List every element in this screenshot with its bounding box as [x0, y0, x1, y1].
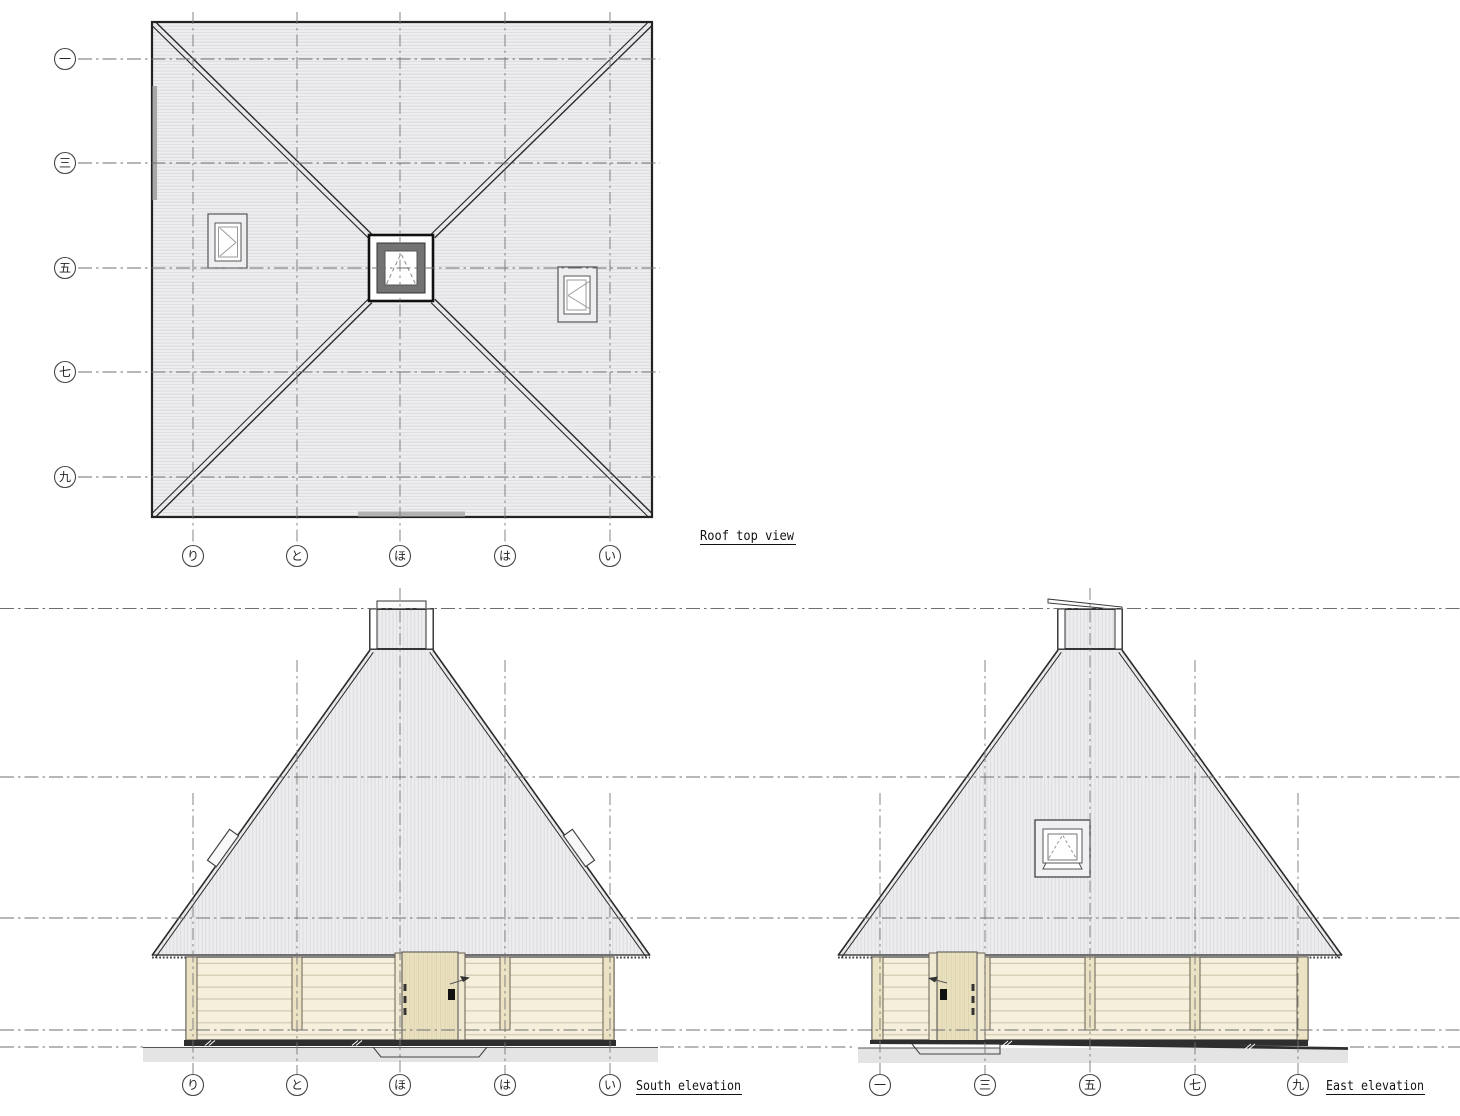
grid-label: 三: [979, 1078, 991, 1092]
grid-label: は: [499, 549, 511, 563]
drawing-sheet: 一 三 五 七 九 り と ほ は い Roof top view: [0, 0, 1460, 1116]
east-cupola: [1048, 599, 1122, 649]
roof-window-west-plan: [208, 214, 247, 268]
grid-label: ほ: [394, 1078, 406, 1092]
south-ground: [143, 1048, 658, 1063]
grid-label: 一: [874, 1078, 886, 1092]
roof-window-east-plan: [558, 267, 597, 322]
door-handle: [940, 989, 947, 1000]
door-hinge: [972, 1008, 975, 1015]
roof-plan-title: Roof top view: [700, 528, 795, 544]
grid-label: 五: [59, 261, 71, 275]
east-ground: [858, 1048, 1348, 1063]
grid-label: 一: [59, 52, 71, 66]
architectural-drawing-svg: 一 三 五 七 九 り と ほ は い Roof top view: [0, 0, 1460, 1116]
roof-plan-row-labels: 一 三 五 七 九: [55, 49, 76, 488]
grid-label: と: [291, 549, 303, 563]
door-handle: [448, 989, 455, 1000]
door-hinge: [404, 1008, 407, 1015]
east-elevation-labels: 一 三 五 七 九 East elevation: [870, 1075, 1426, 1096]
roof-plan-view: 一 三 五 七 九 り と ほ は い Roof top view: [55, 12, 797, 567]
cupola-lid: [377, 601, 426, 609]
door-hinge: [972, 984, 975, 991]
grid-label: い: [604, 1078, 616, 1092]
south-elevation-title: South elevation: [636, 1078, 741, 1094]
grid-label: ほ: [394, 549, 406, 563]
grid-label: 九: [59, 470, 71, 484]
east-roof-window: [1035, 820, 1090, 877]
east-elevation-title: East elevation: [1326, 1078, 1424, 1094]
grid-label: 七: [1189, 1078, 1201, 1092]
grid-label: 七: [59, 365, 71, 379]
grid-label: は: [499, 1078, 511, 1092]
south-elevation-labels: り と ほ は い South elevation: [183, 1075, 743, 1096]
door-hinge: [404, 996, 407, 1003]
grid-label: 三: [59, 156, 71, 170]
grid-label: 九: [1292, 1078, 1304, 1092]
roof-plan-col-labels: り と ほ は い: [183, 546, 621, 567]
grid-label: 五: [1084, 1078, 1096, 1092]
door-hinge: [972, 996, 975, 1003]
grid-label: い: [604, 549, 616, 563]
east-elevation-view: [838, 599, 1348, 1063]
grid-label: り: [187, 549, 199, 563]
door-hinge: [404, 984, 407, 991]
grid-label: り: [187, 1078, 199, 1092]
south-roof-surface: [152, 650, 650, 957]
south-elevation-view: [143, 601, 658, 1062]
grid-label: と: [291, 1078, 303, 1092]
